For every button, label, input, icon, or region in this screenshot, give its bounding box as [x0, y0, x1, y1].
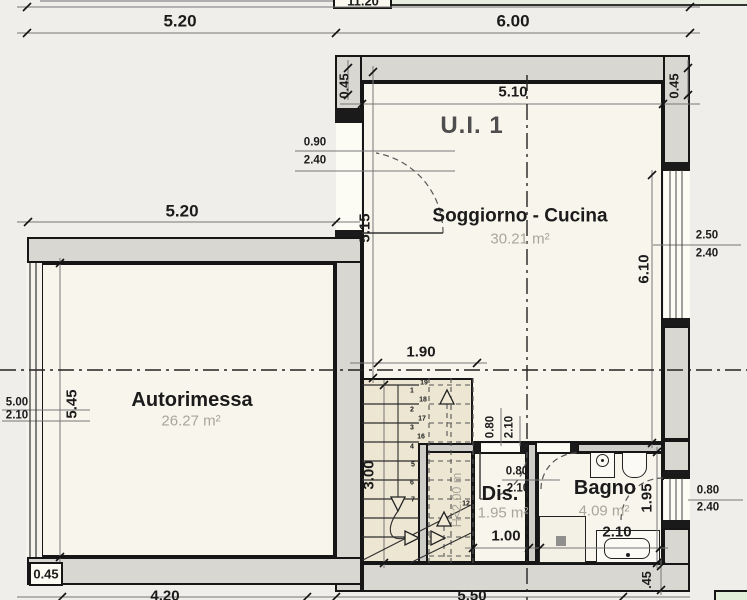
dim-wall-right: 0.45	[668, 73, 681, 98]
stair-number: 12	[462, 501, 470, 508]
dim-garage-width: 5.20	[165, 203, 198, 220]
dim-window-height: 6.10	[637, 254, 652, 283]
dim-dis-width: 1.00	[491, 529, 520, 544]
stair-number: 17	[418, 416, 426, 423]
dim-overall-width: 11.20	[347, 0, 379, 8]
dim-bottom-right: 5.50	[457, 589, 486, 600]
dim-bagno-width: 2.10	[602, 525, 631, 540]
stair-number: 18	[419, 397, 427, 404]
opening-dis-door-width: 0.80	[485, 416, 497, 438]
opening-bagno-window-height: 2.40	[697, 502, 719, 514]
stair-number: 3	[410, 425, 414, 432]
unit-title: U.I. 1	[440, 114, 503, 138]
stair-number: 16	[417, 434, 425, 441]
dim-top-right-width: 6.00	[496, 13, 529, 30]
stair-number: 2	[410, 407, 414, 414]
dim-bottom-left: 4.20	[150, 589, 179, 600]
floor-plan: 11.20 5.20 6.00 0.45 5.10 0.45 U.I. 1 0.…	[0, 0, 747, 600]
opening-entry-height: 2.40	[304, 155, 326, 167]
room-area-soggiorno: 30.21 m²	[490, 232, 549, 247]
room-label-bagno: Bagno	[574, 478, 636, 498]
opening-bagno-door-width: 0.80	[506, 466, 528, 478]
opening-window-width: 2.50	[696, 230, 718, 242]
dim-interior-top: 5.10	[498, 85, 527, 100]
dim-wall-left: 0.45	[338, 73, 351, 98]
stair-number: 19	[420, 380, 428, 387]
stair-number: 4	[410, 444, 414, 451]
opening-garage-width: 5.00	[6, 397, 28, 409]
dim-wall-bottom-right: .45	[641, 571, 654, 588]
room-label-soggiorno: Soggiorno - Cucina	[432, 207, 607, 226]
room-label-autorimessa: Autorimessa	[131, 390, 252, 410]
stair-number: 7	[411, 497, 415, 504]
opening-garage-height: 2.10	[6, 410, 28, 422]
stair-number: 1	[410, 388, 414, 395]
dim-soggiorno-height: 5.15	[358, 213, 373, 242]
stair-number: 5	[411, 462, 415, 469]
room-area-bagno: 4.09 m²	[579, 504, 630, 519]
opening-window-height: 2.40	[696, 248, 718, 260]
dim-stair-run: 3.00	[362, 460, 377, 489]
opening-dis-door-height: 2.10	[504, 416, 516, 438]
room-area-dis: 1.95 m²	[478, 506, 529, 521]
stair-number: 6	[410, 480, 414, 487]
opening-entry-width: 0.90	[304, 137, 326, 149]
dim-garage-height: 5.45	[65, 389, 80, 418]
linework	[0, 0, 747, 600]
room-area-autorimessa: 26.27 m²	[161, 414, 220, 429]
dim-bagno-depth: 1.95	[640, 483, 655, 512]
opening-bagno-window-width: 0.80	[697, 485, 719, 497]
room-label-dis: Dis.	[482, 484, 519, 504]
dim-wall-bottom-left: 0.45	[33, 568, 58, 581]
dim-top-left-width: 5.20	[163, 13, 196, 30]
dim-stair-width: 1.90	[406, 345, 435, 360]
